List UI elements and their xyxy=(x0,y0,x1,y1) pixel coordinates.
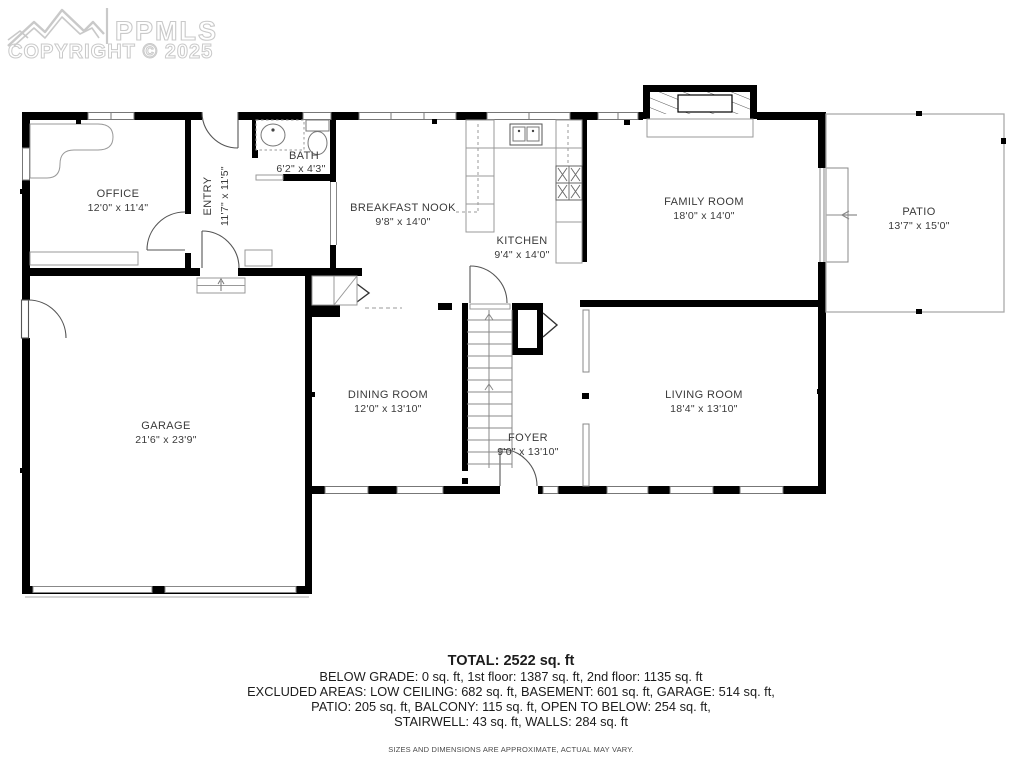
room-dims-living-room: 18'4" x 13'10" xyxy=(670,403,738,415)
window xyxy=(740,487,783,494)
bath-door-threshold xyxy=(256,175,283,180)
kitchen-door-threshold xyxy=(470,304,510,309)
room-label-breakfast-nook: BREAKFAST NOOK xyxy=(350,202,456,214)
copyright-text: COPYRIGHT © 2025 xyxy=(8,41,213,63)
garage-landing-steps xyxy=(312,276,357,305)
window xyxy=(303,113,331,120)
garage-door xyxy=(165,587,296,593)
window xyxy=(23,148,30,180)
room-label-bath: BATH xyxy=(289,150,319,162)
entry-garage-door xyxy=(202,231,239,268)
kitchen-door xyxy=(470,266,507,303)
room-dims-bath: 6'2" x 4'3" xyxy=(276,163,325,175)
window xyxy=(397,487,443,494)
total-area: TOTAL: 2522 sq. ft xyxy=(448,653,575,669)
room-dims-office: 12'0" x 11'4" xyxy=(88,202,149,214)
area-summary: TOTAL: 2522 sq. ft BELOW GRADE: 0 sq. ft… xyxy=(247,653,775,754)
cased-opening-entry xyxy=(331,182,337,245)
garage-door xyxy=(33,587,152,593)
room-dims-garage: 21'6" x 23'9" xyxy=(135,434,197,446)
room-label-patio: PATIO xyxy=(902,206,935,218)
window xyxy=(670,487,713,494)
window xyxy=(607,487,648,494)
room-dims-foyer: 9'0" x 13'10" xyxy=(497,446,559,458)
garage-side-door xyxy=(22,300,67,338)
window xyxy=(543,487,558,494)
room-label-kitchen: KITCHEN xyxy=(496,235,547,247)
room-label-family-room: FAMILY ROOM xyxy=(664,196,744,208)
exterior-walls xyxy=(22,112,826,594)
office-door xyxy=(147,212,185,250)
room-label-garage: GARAGE xyxy=(141,420,190,432)
room-dims-family-room: 18'0" x 14'0" xyxy=(673,210,735,222)
window xyxy=(325,487,368,494)
summary-line-2: EXCLUDED AREAS: LOW CEILING: 682 sq. ft,… xyxy=(247,684,775,699)
window xyxy=(359,113,456,120)
landing-door-chevron xyxy=(357,284,369,302)
fireplace xyxy=(643,85,757,137)
interior-walls xyxy=(22,112,826,471)
room-dims-breakfast-nook: 9'8" x 14'0" xyxy=(375,216,430,228)
firebox xyxy=(678,95,732,112)
room-label-entry: ENTRY xyxy=(202,176,214,215)
toilet-tank xyxy=(306,120,329,131)
entry-closet xyxy=(245,250,272,266)
hearth xyxy=(647,119,753,137)
staircase xyxy=(467,310,512,468)
summary-line-1: BELOW GRADE: 0 sq. ft, 1st floor: 1387 s… xyxy=(319,669,703,684)
room-label-dining-room: DINING ROOM xyxy=(348,389,428,401)
stove xyxy=(556,166,582,200)
disclaimer: SIZES AND DIMENSIONS ARE APPROXIMATE, AC… xyxy=(388,745,634,754)
room-label-office: OFFICE xyxy=(97,188,140,200)
room-dims-dining-room: 12'0" x 13'10" xyxy=(354,403,422,415)
room-dims-kitchen: 9'4" x 14'0" xyxy=(494,249,549,261)
room-label-living-room: LIVING ROOM xyxy=(665,389,743,401)
summary-line-4: STAIRWELL: 43 sq. ft, WALLS: 284 sq. ft xyxy=(394,714,628,729)
floorplan-svg: PPMLS COPYRIGHT © 2025 xyxy=(0,0,1023,768)
office-desk xyxy=(30,124,113,178)
garage-doors xyxy=(25,587,309,598)
bath-sink xyxy=(261,124,285,146)
closet-door-chevron xyxy=(543,313,557,337)
room-dims-patio: 13'7" x 15'0" xyxy=(888,220,950,232)
summary-line-3: PATIO: 205 sq. ft, BALCONY: 115 sq. ft, … xyxy=(311,699,711,714)
floorplan-page: PPMLS COPYRIGHT © 2025 xyxy=(0,0,1023,768)
room-label-foyer: FOYER xyxy=(508,432,548,444)
entry-steps xyxy=(197,278,245,293)
room-dims-entry: 11'7" x 11'5" xyxy=(219,166,231,226)
office-credenza xyxy=(30,252,138,265)
